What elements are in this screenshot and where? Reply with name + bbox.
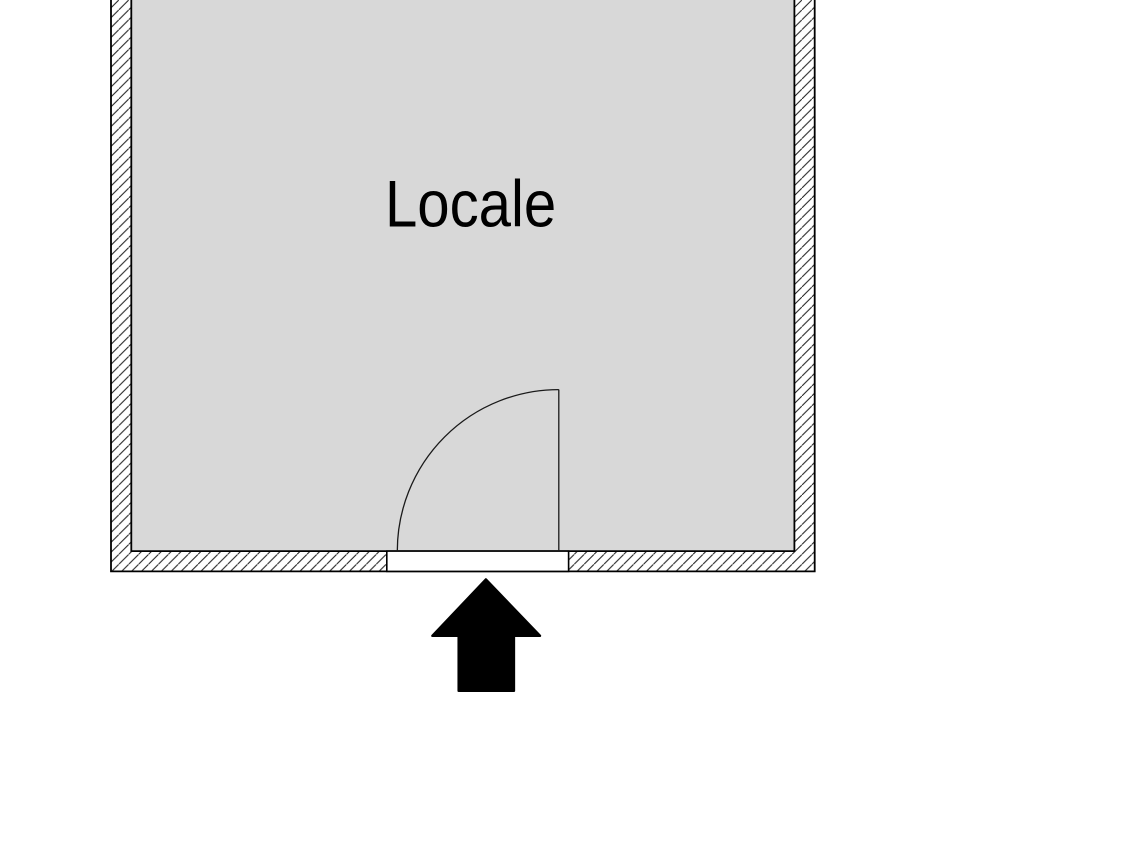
svg-text:Locale: Locale <box>385 168 556 241</box>
